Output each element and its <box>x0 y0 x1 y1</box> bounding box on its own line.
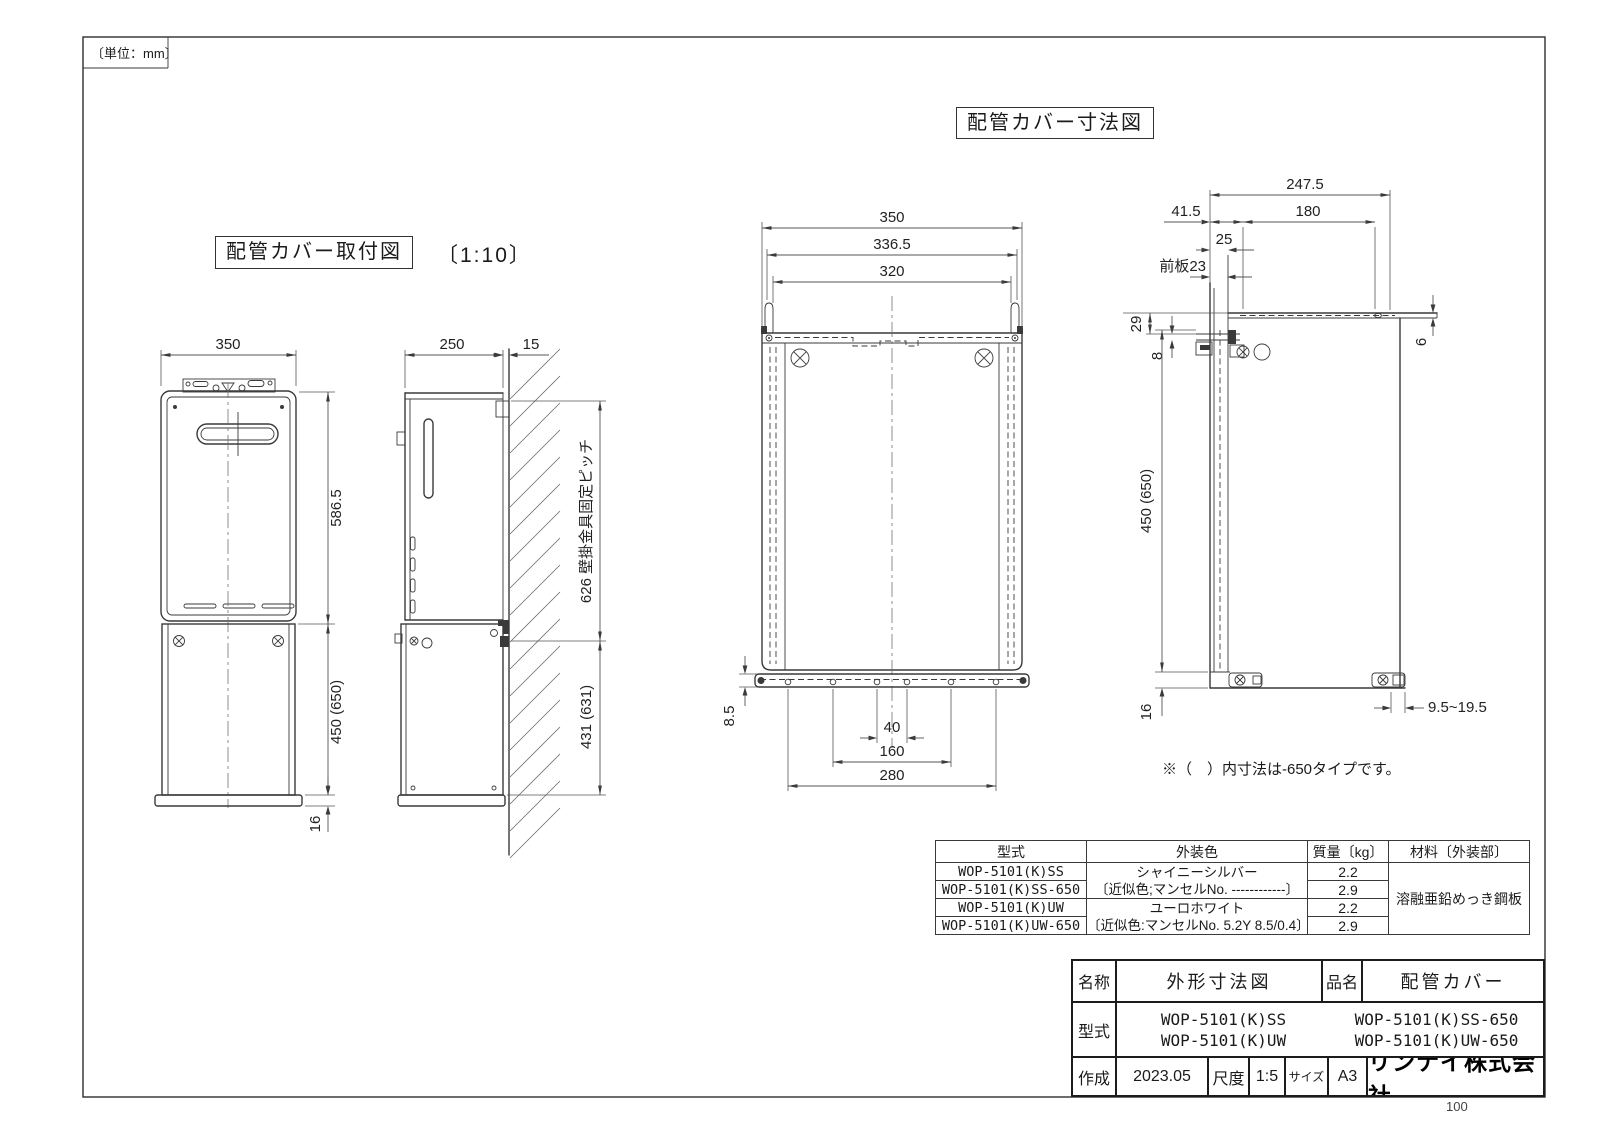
dim-hook-top: 29 <box>1128 316 1145 333</box>
side-hook-screw <box>1237 344 1270 360</box>
type-650-note: ※（ ）内寸法は-650タイプです。 <box>1162 758 1401 779</box>
dim-offset: 41.5 <box>1171 203 1200 220</box>
date-value: 2023.05 <box>1117 1058 1209 1095</box>
spec-table: 型式 外装色 質量〔kg〕 材料〔外装部〕 WOP-5101(K)SS シャイニ… <box>935 840 1530 935</box>
dim-side-depth: 250 <box>439 336 464 353</box>
cover-screw-left <box>791 349 809 367</box>
model-list: WOP-5101(K)SS WOP-5101(K)SS-650 WOP-5101… <box>1117 1010 1543 1050</box>
dim-bottom-height: 16 <box>1138 704 1155 721</box>
dimension-view-title: 配管カバー寸法図 <box>956 107 1154 139</box>
install-view-title: 配管カバー取付図 <box>215 236 413 269</box>
dim-front-gap: 25 <box>1216 231 1233 248</box>
model-value: WOP-5101(K)SS-650 <box>1330 1010 1543 1029</box>
page-number: 100 <box>1446 1099 1468 1114</box>
spec-color-silver: シャイニーシルバー 〔近似色;マンセルNo. ------------〕 <box>1087 863 1308 899</box>
dim-side-cover-height: 431 (631) <box>578 685 595 749</box>
dim-wall-gap: 15 <box>523 336 540 353</box>
unit-note: 〔単位：mm〕 <box>91 43 178 62</box>
item-value: 配管カバー <box>1363 961 1543 1001</box>
scale-label: 尺度 <box>1209 1058 1250 1095</box>
color-munsell: 〔近似色;マンセルNo. ------------〕 <box>1087 881 1307 898</box>
spec-row: WOP-5101(K)SS シャイニーシルバー 〔近似色;マンセルNo. ---… <box>936 863 1530 881</box>
model-value: WOP-5101(K)UW-650 <box>1330 1031 1543 1050</box>
spec-material: 溶融亜鉛めっき鋼板 <box>1389 863 1530 935</box>
spec-header-row: 型式 外装色 質量〔kg〕 材料〔外装部〕 <box>936 841 1530 863</box>
size-label: サイズ <box>1286 1058 1329 1095</box>
model-value: WOP-5101(K)UW <box>1117 1031 1330 1050</box>
model-label: 型式 <box>1073 1003 1117 1056</box>
name-value: 外形寸法図 <box>1117 961 1323 1001</box>
dim-cover-width-inner: 320 <box>879 263 904 280</box>
dim-hole-pitch-a: 40 <box>884 719 901 736</box>
cover-screw-left <box>174 636 185 647</box>
install-view-scale: 〔1:10〕 <box>437 239 532 269</box>
dim-cover-width: 350 <box>879 209 904 226</box>
dim-hole-pitch-b: 160 <box>879 743 904 760</box>
dim-depth-total: 247.5 <box>1286 176 1324 193</box>
sheet-frame <box>83 37 1545 1097</box>
color-name: シャイニーシルバー <box>1087 864 1307 881</box>
date-label: 作成 <box>1073 1058 1117 1095</box>
company-name: リンナイ株式会社 <box>1368 1058 1543 1095</box>
dim-front-height: 586.5 <box>328 489 345 527</box>
spec-header-material: 材料〔外装部〕 <box>1389 841 1530 863</box>
color-name: ユーロホワイト <box>1087 900 1307 917</box>
item-label: 品名 <box>1323 961 1363 1001</box>
spec-model: WOP-5101(K)SS-650 <box>936 881 1087 899</box>
spec-header-color: 外装色 <box>1087 841 1308 863</box>
drawing-sheet: 350 586.5 450 (650) 16 <box>0 0 1600 1131</box>
spec-model: WOP-5101(K)UW <box>936 899 1087 917</box>
cover-screw-right <box>975 349 993 367</box>
spec-mass: 2.2 <box>1308 863 1389 881</box>
dim-arm-length: 180 <box>1295 203 1320 220</box>
bottom-bracket-left <box>1235 675 1261 685</box>
dim-mount-pitch: 626 壁掛金具固定ピッチ <box>578 439 595 603</box>
dim-front-plate: 前板23 <box>1159 257 1206 275</box>
spec-header-mass: 質量〔kg〕 <box>1308 841 1389 863</box>
cover-front-view: 350 336.5 320 8.5 40 160 280 <box>721 209 1029 791</box>
color-munsell: 〔近似色:マンセルNo. 5.2Y 8.5/0.4〕 <box>1087 917 1307 934</box>
dim-cover-width-outer: 336.5 <box>873 236 911 253</box>
dim-front-width: 350 <box>215 336 240 353</box>
side-cover-screws <box>410 630 498 791</box>
dim-wall-range: 9.5~19.5 <box>1428 699 1487 716</box>
dim-cover-height: 450 (650) <box>328 680 345 744</box>
title-block: 名称 外形寸法図 品名 配管カバー 型式 WOP-5101(K)SS WOP-5… <box>1071 959 1545 1097</box>
spec-model: WOP-5101(K)UW-650 <box>936 917 1087 935</box>
install-side-view: 250 15 626 壁掛金具固定ピッチ 431 (631) <box>395 336 606 858</box>
spec-mass: 2.2 <box>1308 899 1389 917</box>
spec-color-white: ユーロホワイト 〔近似色:マンセルNo. 5.2Y 8.5/0.4〕 <box>1087 899 1308 935</box>
dim-cover-bottom: 16 <box>307 816 324 833</box>
scale-value: 1:5 <box>1250 1058 1286 1095</box>
spec-mass: 2.9 <box>1308 917 1389 935</box>
dim-flange-height: 8.5 <box>721 706 738 727</box>
dim-arm-thickness: 6 <box>1413 338 1430 346</box>
install-front-view: 350 586.5 450 (650) 16 <box>155 336 345 832</box>
dim-cover-side-height: 450 (650) <box>1138 469 1155 533</box>
spec-model: WOP-5101(K)SS <box>936 863 1087 881</box>
size-value: A3 <box>1329 1058 1368 1095</box>
name-label: 名称 <box>1073 961 1117 1001</box>
spec-mass: 2.9 <box>1308 881 1389 899</box>
cover-side-view: 247.5 41.5 180 25 前板23 29 8 6 450 <box>1123 176 1487 720</box>
dim-hole-pitch-c: 280 <box>879 767 904 784</box>
cover-screw-right <box>273 636 284 647</box>
model-value: WOP-5101(K)SS <box>1117 1010 1330 1029</box>
spec-header-model: 型式 <box>936 841 1087 863</box>
dim-hook: 8 <box>1149 352 1166 360</box>
